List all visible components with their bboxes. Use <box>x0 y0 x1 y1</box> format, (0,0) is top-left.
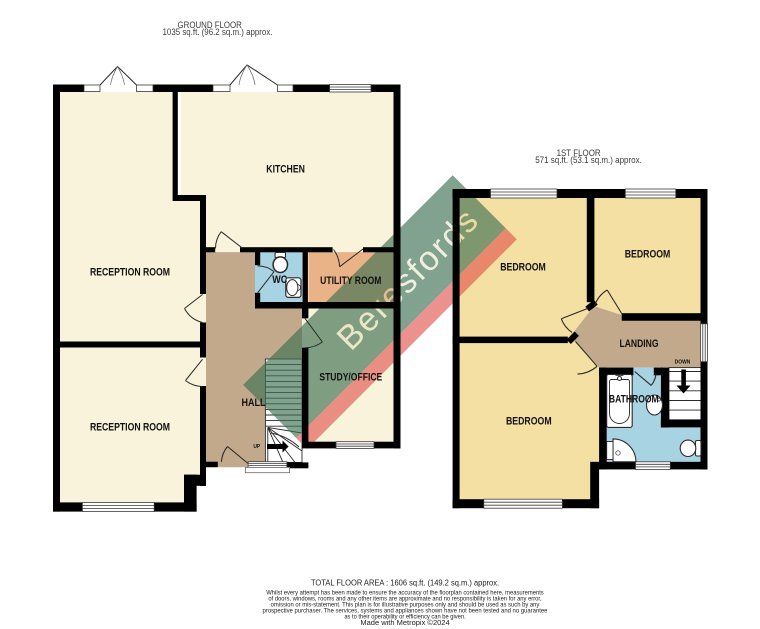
svg-text:RECEPTION ROOM: RECEPTION ROOM <box>90 267 170 279</box>
svg-text:UTILITY ROOM: UTILITY ROOM <box>320 275 381 287</box>
svg-text:571 sq.ft. (53.1 sq.m.) approx: 571 sq.ft. (53.1 sq.m.) approx. <box>535 154 642 165</box>
svg-text:STUDY/OFFICE: STUDY/OFFICE <box>319 371 382 383</box>
svg-text:HALL: HALL <box>241 397 265 409</box>
svg-text:RECEPTION ROOM: RECEPTION ROOM <box>90 422 170 434</box>
svg-text:KITCHEN: KITCHEN <box>266 164 305 176</box>
svg-text:BEDROOM: BEDROOM <box>625 249 671 261</box>
svg-text:BEDROOM: BEDROOM <box>500 262 546 274</box>
svg-text:TOTAL FLOOR AREA : 1606 sq.ft.: TOTAL FLOOR AREA : 1606 sq.ft. (149.2 sq… <box>311 578 499 587</box>
svg-text:Made with Metropix ©2024: Made with Metropix ©2024 <box>360 618 449 627</box>
svg-text:WC: WC <box>272 274 287 286</box>
svg-text:BATHROOM: BATHROOM <box>609 394 659 406</box>
svg-text:UP: UP <box>253 444 260 450</box>
svg-text:BEDROOM: BEDROOM <box>506 415 552 427</box>
svg-text:DOWN: DOWN <box>675 359 691 365</box>
svg-text:LANDING: LANDING <box>619 338 658 350</box>
svg-text:1035 sq.ft. (96.2 sq.m.) appro: 1035 sq.ft. (96.2 sq.m.) approx. <box>163 27 273 38</box>
